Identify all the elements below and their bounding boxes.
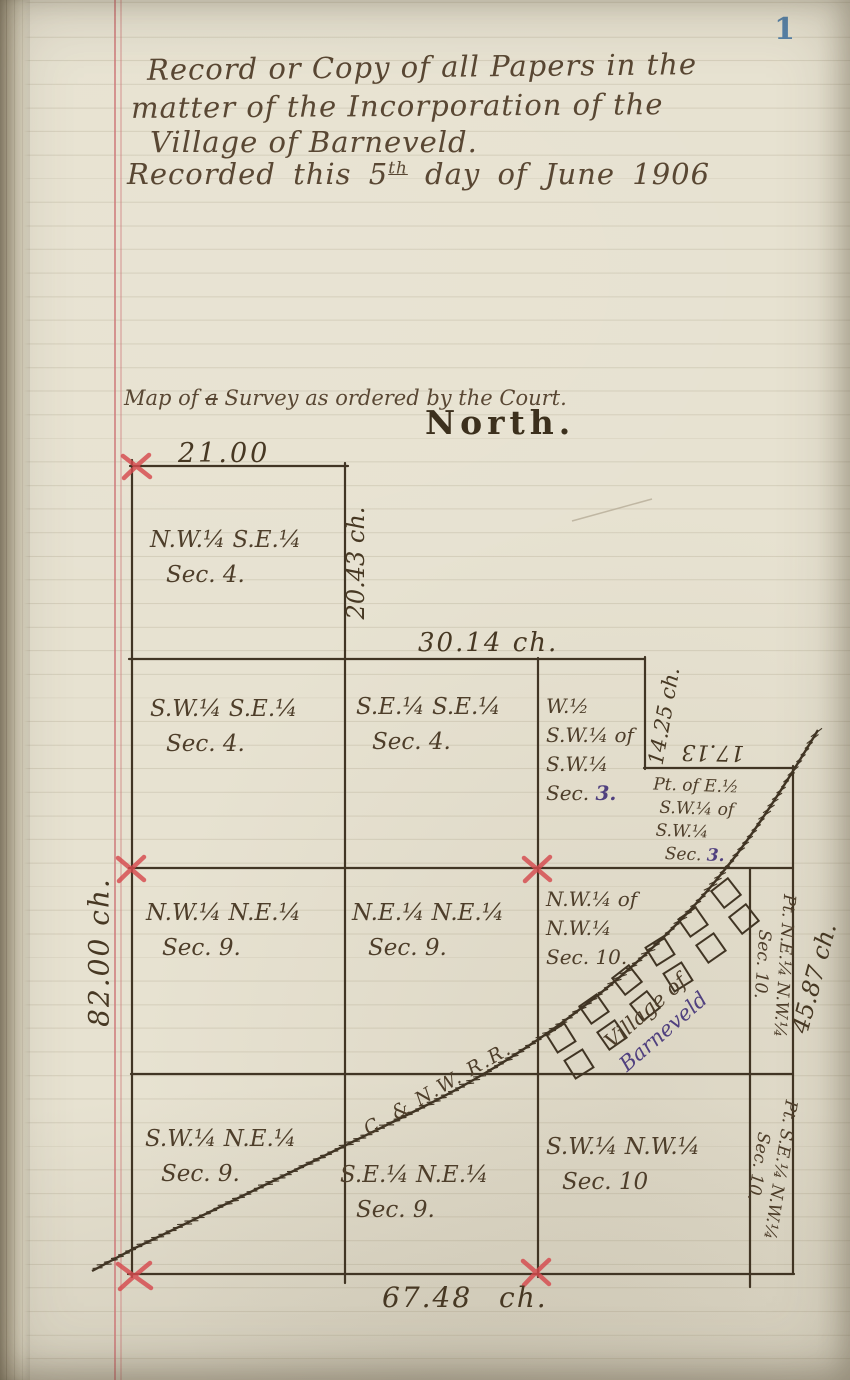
parcel-line: N.W.¼ N.E.¼	[146, 896, 301, 931]
parcel-line: Sec. 10	[562, 1165, 700, 1200]
railroad-tie	[339, 1144, 354, 1145]
railroad-tie	[132, 1246, 142, 1247]
railroad-tie	[690, 901, 701, 906]
village-block	[696, 933, 725, 962]
parcel-label-ne-ne-9: N.E.¼ N.E.¼ Sec. 9.	[352, 896, 504, 965]
parcel-label-nw-nw-10: N.W.¼ of N.W.¼ Sec. 10.	[546, 885, 637, 972]
parcel-label-sw-ne-9: S.W.¼ N.E.¼ Sec. 9.	[145, 1122, 296, 1191]
railroad-tie	[93, 1268, 103, 1269]
railroad-tie	[335, 1148, 345, 1149]
dim-notch-width: 17.13	[681, 739, 744, 765]
parcel-line: S.E.¼ S.E.¼	[356, 690, 501, 725]
pencil-stray-line	[572, 499, 652, 521]
parcel-line: Sec. 10.	[546, 943, 637, 972]
railroad-tie	[144, 1240, 158, 1241]
railroad-tie	[763, 805, 775, 813]
railroad-tie	[768, 799, 779, 806]
railroad-tie	[151, 1237, 164, 1238]
parcel-line: Sec. 9.	[356, 1193, 488, 1228]
village-block	[547, 1024, 576, 1053]
dim-ne-side: 20.43 ch.	[342, 507, 370, 620]
parcel-line: S.W.¼	[655, 820, 737, 846]
parcel-line: Sec. 3.	[546, 779, 634, 808]
sec-prefix: Sec.	[664, 844, 701, 865]
parcel-label-nw-se-4: N.W.¼ S.E.¼ Sec. 4.	[150, 523, 301, 592]
red-x-mark	[118, 1263, 151, 1289]
village-block	[678, 907, 707, 936]
parcel-line: N.E.¼ N.E.¼	[352, 896, 504, 931]
railroad-tie	[213, 1207, 223, 1208]
parcel-line: S.W.¼ S.E.¼	[150, 692, 297, 727]
parcel-label-nw-ne-9: N.W.¼ N.E.¼ Sec. 9.	[146, 896, 301, 965]
parcel-line: N.W.¼	[546, 914, 637, 943]
parcel-label-sw-se-4: S.W.¼ S.E.¼ Sec. 4.	[150, 692, 297, 761]
parcel-line: Sec. 3.	[664, 843, 736, 868]
sec-number-overwritten: 3.	[595, 781, 616, 805]
parcel-line: Sec. 4.	[166, 727, 297, 762]
parcel-line: S.W.¼ of	[546, 721, 634, 750]
parcel-line: Pt. of E.½	[653, 774, 739, 800]
dim-top-width: 21.00	[178, 438, 270, 469]
railroad-tie	[353, 1138, 366, 1139]
parcel-line: S.E.¼ N.E.¼	[340, 1158, 488, 1193]
parcel-line: Sec. 4.	[372, 725, 501, 760]
parcel-line: W.½	[546, 692, 634, 721]
railroad-tie	[247, 1191, 258, 1192]
railroad-tie	[239, 1194, 251, 1195]
railroad-tie	[158, 1234, 170, 1235]
parcel-line: S.W.¼ N.W.¼	[546, 1130, 700, 1165]
railroad-tie	[346, 1141, 360, 1142]
parcel-label-w-half-sw-3: W.½ S.W.¼ of S.W.¼ Sec. 3.	[546, 692, 634, 808]
parcel-line: S.W.¼ of	[659, 797, 738, 823]
railroad-tie	[327, 1151, 338, 1152]
dim-row2-width: 30.14 ch.	[418, 628, 558, 658]
railroad-tie	[97, 1264, 112, 1265]
parcel-label-se-se-4: S.E.¼ S.E.¼ Sec. 4.	[356, 690, 501, 759]
parcel-line: N.W.¼ S.E.¼	[150, 523, 301, 558]
railroad-tie	[173, 1227, 183, 1228]
railroad-tie	[232, 1197, 245, 1198]
railroad-tie	[714, 873, 726, 879]
sec-prefix: Sec.	[546, 781, 589, 805]
railroad-tie	[801, 748, 810, 755]
parcel-line: Sec. 9.	[161, 1157, 296, 1192]
dim-west-side: 82.00 ch.	[83, 877, 116, 1027]
railroad-tie	[747, 830, 757, 837]
railroad-tie	[320, 1154, 332, 1155]
parcel-label-pt-e-half-sw-3: Pt. of E.½ S.W.¼ of S.W.¼ Sec. 3.	[650, 774, 738, 869]
railroad-tie	[177, 1224, 192, 1225]
parcel-line: Sec. 4.	[166, 558, 301, 593]
railroad-tie	[137, 1243, 152, 1244]
parcel-line: S.W.¼ N.E.¼	[145, 1122, 296, 1157]
parcel-line: S.W.¼	[546, 750, 634, 779]
parcel-line: N.W.¼ of	[546, 885, 637, 914]
railroad-tie	[166, 1230, 177, 1231]
ledger-page: 1 Record or Copy of all Papers in the ma…	[0, 0, 850, 1380]
parcel-label-sw-nw-10: S.W.¼ N.W.¼ Sec. 10	[546, 1130, 700, 1199]
dim-south-width: 67.48 ch.	[382, 1281, 548, 1314]
sec-number-overwritten: 3.	[707, 845, 725, 866]
parcel-label-se-ne-9: S.E.¼ N.E.¼ Sec. 9.	[340, 1158, 488, 1227]
parcel-line: Sec. 9.	[162, 931, 301, 966]
parcel-line: Sec. 9.	[368, 931, 504, 966]
